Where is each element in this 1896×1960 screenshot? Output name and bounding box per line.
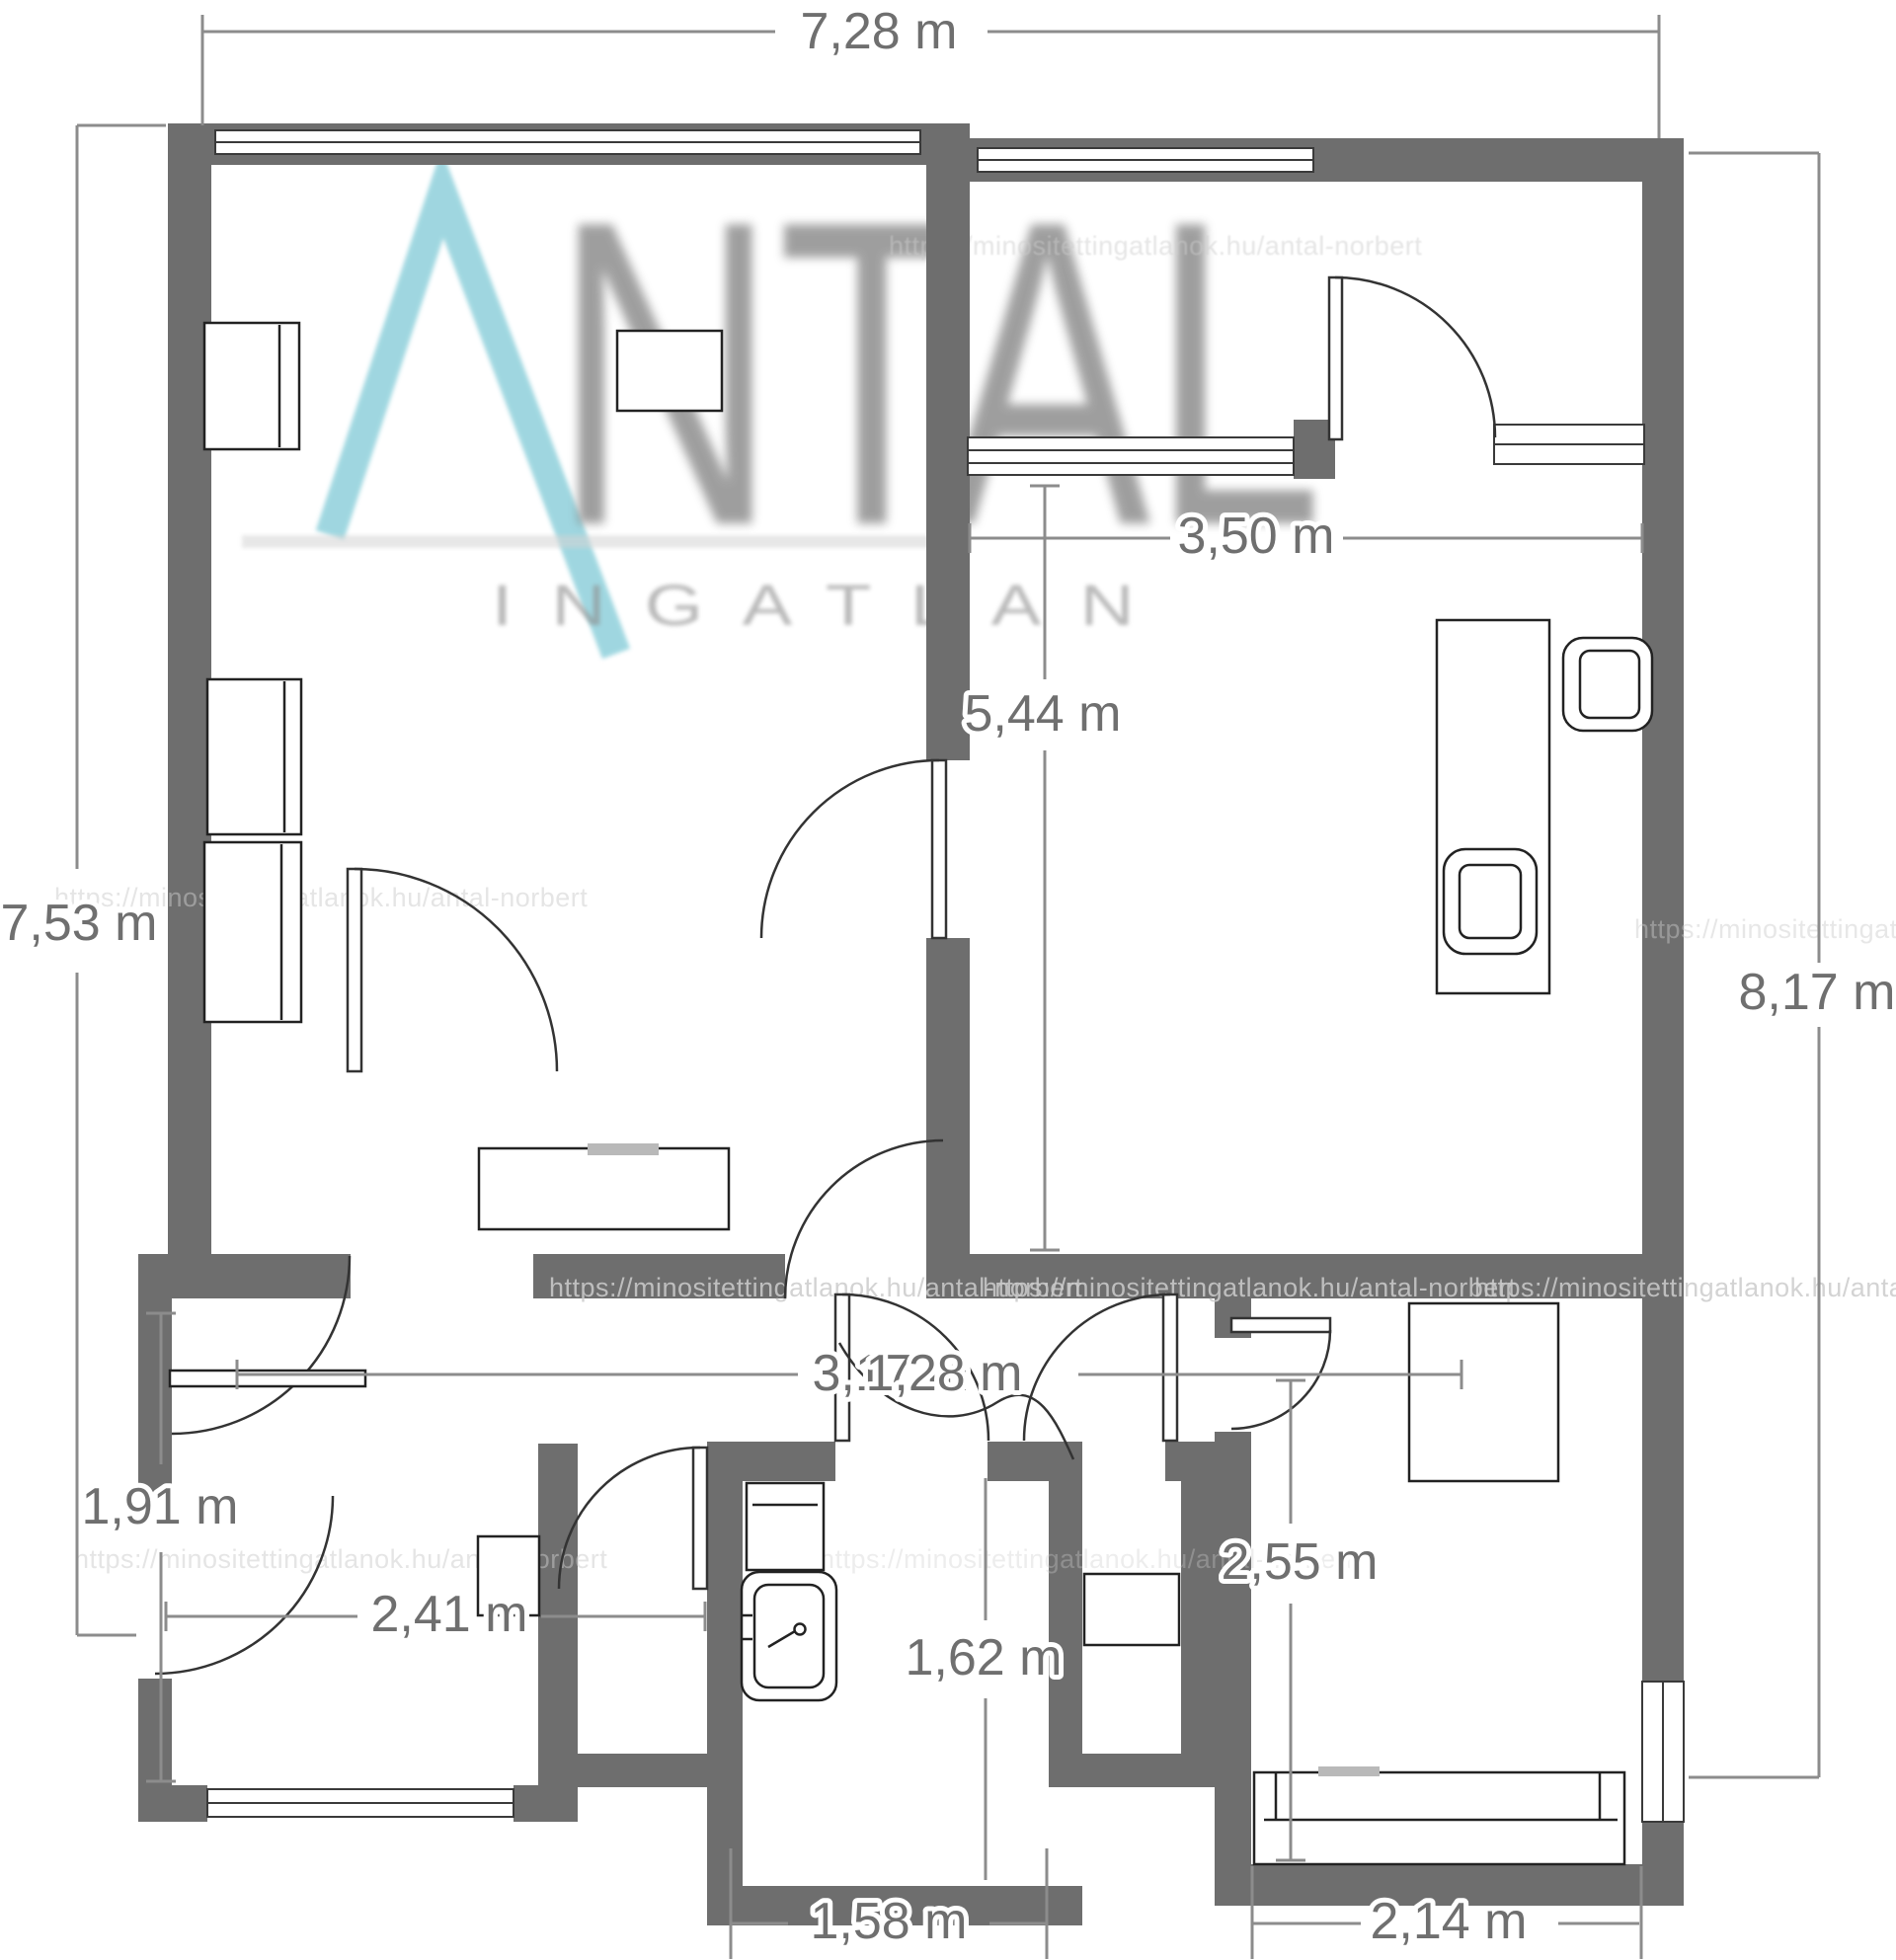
wall-bath-left	[707, 1442, 743, 1925]
window-right-lower	[1642, 1682, 1684, 1822]
window-top-right	[978, 148, 1313, 172]
door-center-wall	[761, 760, 946, 938]
dim-label-total-width: 7,28 m	[801, 3, 958, 60]
logo-underline-bar	[242, 535, 939, 548]
wall-bath-top-b	[987, 1442, 1049, 1481]
url-watermarks: https://minositettingatlanok.hu/antal-no…	[54, 883, 1896, 1574]
wall-bath-top-a	[707, 1442, 835, 1481]
window-entry-bottom	[207, 1789, 513, 1817]
window-top-left	[215, 130, 920, 154]
wall-wc-right	[1181, 1442, 1215, 1787]
watermark-url-text: https://minositettingatlanok.hu/antal-no…	[983, 1273, 1516, 1302]
washing-machine	[747, 1483, 824, 1570]
wall-right-lower-a	[1642, 1298, 1684, 1682]
sideboard	[479, 1143, 729, 1229]
wall-center-upper	[926, 123, 970, 760]
wall-right-lower-b	[1642, 1822, 1684, 1906]
wall-lowerleft-a	[138, 1254, 172, 1496]
wall-center-lower	[926, 938, 970, 1298]
toilet	[1084, 1574, 1179, 1645]
wall-closet-bottom	[538, 1754, 707, 1787]
dim-label-bedroom-width: 3,50 m	[1178, 508, 1335, 565]
chair-top	[1563, 638, 1652, 731]
sink	[742, 1572, 836, 1700]
watermark-url-text: https://minositettingatlanok.hu/antal-no…	[1634, 914, 1896, 944]
threshold	[170, 1371, 365, 1386]
dim-label-entry-height: 1,91 m	[82, 1478, 239, 1535]
window-partition-interior	[968, 437, 1294, 475]
door-bedroom-partition	[1329, 277, 1495, 439]
cabinet-left-1	[204, 323, 299, 449]
dim-label-bedroom-height: 5,44 m	[965, 685, 1122, 743]
dim-label-bathroom-height: 1,62 m	[906, 1629, 1063, 1686]
wall-wc-post	[1165, 1442, 1181, 1481]
floor-plan-drawing: NTAL INGATLAN https://minositettingatlan…	[0, 0, 1896, 1960]
window-sill-right	[1494, 425, 1644, 464]
cabinet-left-3	[204, 842, 301, 1022]
floor-plan-page: NTAL INGATLAN https://minositettingatlan…	[0, 0, 1896, 1960]
wall-left-exterior	[168, 123, 211, 1298]
cabinet-left-2	[207, 679, 301, 834]
wall-br-left	[1215, 1432, 1251, 1864]
dim-label-bathroom-width: 1,58 m	[811, 1893, 968, 1950]
wardrobe	[1409, 1303, 1558, 1481]
dim-label-total-height-right: 8,17 m	[1739, 964, 1896, 1021]
couch	[1254, 1766, 1624, 1864]
brand-watermark: NTAL INGATLAN https://minositettingatlan…	[242, 131, 1422, 654]
table-small	[617, 331, 722, 411]
dim-label-room-br-height: 2,55 m	[1222, 1533, 1379, 1591]
dim-label-total-height-left: 7,53 m	[1, 895, 158, 952]
wall-entry-bottom-a	[138, 1785, 207, 1822]
wall-entry-bottom-b	[513, 1785, 578, 1822]
dim-label-entry-width: 2,41 m	[371, 1586, 528, 1643]
wall-wc-bottom	[1049, 1754, 1215, 1787]
dim-label-hallway-width-overlap: 1,28 m	[866, 1345, 1023, 1402]
watermark-url-text: https://minositettingatlanok.hu/antal-no…	[1474, 1273, 1896, 1302]
chair-bottom	[1444, 849, 1537, 954]
logo-subtitle-text: INGATLAN	[492, 574, 1173, 638]
wall-bath-right	[1049, 1442, 1082, 1767]
door-wc	[1024, 1294, 1177, 1441]
dim-label-room-br-width: 2,14 m	[1371, 1893, 1528, 1950]
wall-bottom-upper-a	[168, 1254, 351, 1298]
